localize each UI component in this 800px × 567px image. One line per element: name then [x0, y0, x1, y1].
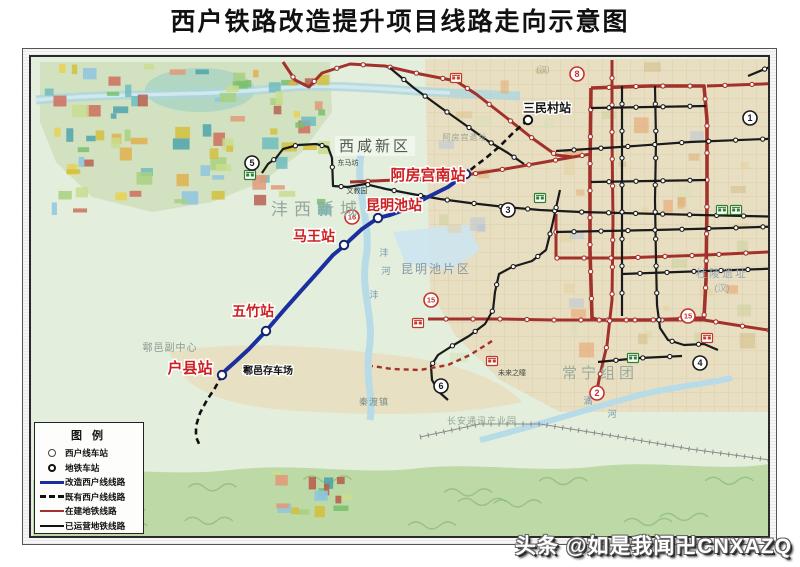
area-label: 长安通讯产业园	[447, 415, 517, 426]
depot-icon-green	[628, 354, 639, 363]
station-circle	[218, 371, 226, 379]
halo-red: 阿房宫南站	[390, 166, 465, 184]
legend-box: 图例 西户线车站地铁车站改造西户线线路既有西户线线路在建地铁线路已运营地铁线路	[34, 422, 144, 534]
svg-text:4: 4	[697, 358, 702, 368]
station-circle	[340, 241, 348, 249]
depot-icon-green	[731, 206, 742, 215]
legend-item: 改造西户线线路	[39, 475, 139, 490]
legend-rows: 西户线车站地铁车站改造西户线线路既有西户线线路在建地铁线路已运营地铁线路	[39, 446, 139, 533]
halo-black: 三民村站	[523, 100, 571, 115]
line-badge-1: 1	[743, 111, 757, 125]
svg-text:6: 6	[438, 381, 443, 391]
line-blue-icon	[39, 481, 65, 484]
halo-red: 五竹站	[232, 303, 274, 319]
area-label: 杜陵遗址	[696, 266, 748, 280]
svg-text:15: 15	[427, 296, 435, 305]
legend-item-label: 已运营地铁线路	[65, 520, 125, 532]
legend-item: 地铁车站	[39, 461, 139, 476]
legend-item-label: 在建地铁线路	[65, 505, 117, 517]
xihu-station-icon	[39, 449, 65, 457]
metro-station-icon	[39, 464, 65, 472]
area-label: 昆明池片区	[401, 262, 471, 276]
line-badge-15: 15	[424, 293, 438, 307]
area-label: 阿房宫遗址	[443, 132, 488, 142]
svg-text:5: 5	[249, 158, 254, 168]
river-label: 沣	[379, 247, 388, 258]
poi-label: 文教园	[347, 186, 368, 195]
halo-red: 户县站	[167, 359, 212, 377]
svg-text:2: 2	[594, 388, 599, 398]
svg-text:3: 3	[505, 205, 510, 215]
area-label: (汉)	[536, 65, 550, 74]
area-label: 西咸新区	[339, 138, 411, 155]
poi-label: 未来之瞳	[498, 368, 526, 377]
station-circle	[262, 327, 270, 335]
station-circle	[374, 214, 382, 222]
depot-icon-red	[413, 319, 424, 328]
depot-icon-red	[451, 74, 462, 83]
river-label: 河	[381, 265, 390, 276]
svg-text:1: 1	[747, 113, 752, 123]
line-badge-8: 8	[570, 67, 584, 81]
halo-red: 马王站	[293, 228, 335, 244]
depot-icon-green	[535, 194, 546, 203]
halo-red: 昆明池站	[366, 197, 422, 213]
watermark: 头条 @如是我闻卍CNXAZQ	[515, 530, 792, 560]
area-label: 常宁组团	[562, 365, 638, 382]
svg-text:8: 8	[574, 69, 579, 79]
poi-label: 东马坊	[338, 158, 359, 167]
screenshot-root: 西户铁路改造提升项目线路走向示意图 5163811515642西咸新区沣西新城昆…	[0, 0, 800, 567]
area-label: 秦渡镇	[359, 396, 389, 407]
river-label: 河	[607, 408, 616, 419]
line-badge-6: 6	[434, 379, 448, 393]
depot-icon-green	[245, 171, 256, 180]
line-red-icon	[39, 510, 65, 512]
area-label: (汉)	[715, 283, 730, 293]
line-badge-4: 4	[693, 356, 707, 370]
depot-icon-red	[487, 357, 498, 366]
legend-item: 西户线车站	[39, 446, 139, 461]
line-badge-3: 3	[501, 203, 515, 217]
depot-icon-red	[702, 334, 713, 343]
legend-item-label: 地铁车站	[65, 462, 99, 474]
depot-icon-green	[717, 206, 728, 215]
line-badge-15: 15	[681, 309, 695, 323]
legend-item-label: 改造西户线线路	[65, 476, 125, 488]
river-label: 潏	[583, 396, 592, 406]
line-badge-5: 5	[245, 156, 259, 170]
legend-title: 图例	[45, 427, 139, 443]
halo-black: 鄠邑存车场	[243, 364, 293, 377]
page-title: 西户铁路改造提升项目线路走向示意图	[0, 2, 800, 38]
river-label: 沣	[369, 289, 378, 300]
line-dash-icon	[39, 495, 65, 498]
line-black-icon	[39, 525, 65, 527]
area-label: 沣西新城	[271, 200, 363, 219]
legend-item-label: 西户线车站	[65, 447, 108, 459]
legend-item: 既有西户线线路	[39, 490, 139, 505]
legend-item: 已运营地铁线路	[39, 519, 139, 534]
area-label: 鄠邑副中心	[143, 341, 198, 354]
legend-item: 在建地铁线路	[39, 504, 139, 519]
legend-item-label: 既有西户线线路	[65, 491, 125, 503]
station-circle	[524, 116, 532, 124]
svg-text:15: 15	[684, 312, 692, 321]
